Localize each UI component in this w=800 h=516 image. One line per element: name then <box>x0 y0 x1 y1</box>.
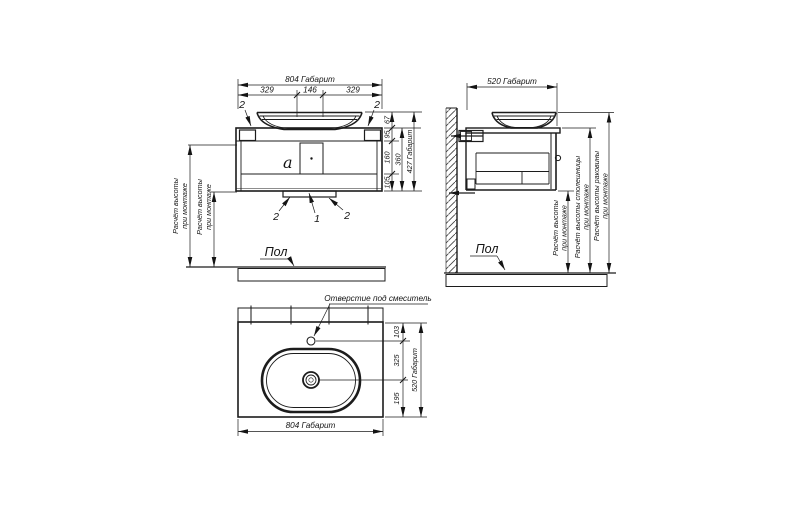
side-dim-total-depth-label: 520 Габарит <box>487 77 537 86</box>
side-sink-height-line2: при монтаже <box>601 173 610 219</box>
sink-bowl-front <box>257 113 362 130</box>
front-view: 804 Габарит 329 146 329 2 2 <box>171 75 422 281</box>
front-mount-height-2-line2: при монтаже <box>204 184 213 230</box>
front-mount-height-2-line1: Расчёт высоты <box>195 178 204 234</box>
side-dims-right: Расчёт высоты при монтаже Расчёт высоты … <box>551 113 614 274</box>
sink-bowl-side <box>492 113 556 129</box>
top-dims-right: 103 325 195 520 Габарит <box>316 323 427 417</box>
floor-label-front: Пол <box>265 245 288 259</box>
side-view: 520 Габарит <box>444 77 616 287</box>
top-dim-103: 103 <box>392 326 401 338</box>
faucet-hole-label: Отверстие под смеситель <box>324 294 431 303</box>
side-dim-total-depth: 520 Габарит <box>467 77 557 126</box>
svg-text:2: 2 <box>238 99 245 111</box>
mount-bracket-left-icon <box>240 130 256 141</box>
front-dims-right: 67 95 160 105 360 427 Габарит <box>365 112 422 191</box>
floor-front: Пол <box>186 245 386 281</box>
basin-plan <box>262 349 360 412</box>
svg-text:2: 2 <box>373 99 380 111</box>
top-dim-total-depth: 520 Габарит <box>410 348 419 392</box>
detail-a-label: a <box>283 153 293 172</box>
faucet-hole-callout: Отверстие под смеситель <box>314 294 432 336</box>
front-mount-height-1-line1: Расчёт высоты <box>171 177 180 233</box>
top-view: Отверстие под смеситель <box>238 294 432 436</box>
front-dim-95: 95 <box>383 130 392 139</box>
front-dim-360: 360 <box>394 154 403 166</box>
front-dim-total-height: 427 Габарит <box>405 130 414 174</box>
front-callout-1: 1 <box>314 213 320 225</box>
wall-hatch <box>446 108 457 273</box>
countertop-plan <box>238 322 383 417</box>
front-dim-total-width-label: 804 Габарит <box>285 75 335 84</box>
top-dim-total-width: 804 Габарит <box>238 419 383 436</box>
front-dim-160: 160 <box>383 152 392 164</box>
front-callout-bracket-left: 2 <box>238 99 251 126</box>
front-dim-105: 105 <box>383 176 392 189</box>
top-dim-total-width-label: 804 Габарит <box>286 421 336 430</box>
front-callout-2-left: 2 <box>272 211 279 223</box>
front-callouts-bottom: 2 1 2 <box>272 193 350 225</box>
front-mount-height-1-line2: при монтаже <box>180 183 189 229</box>
faucet-hole-icon <box>307 337 315 345</box>
front-callout-2-right: 2 <box>343 210 350 222</box>
side-countertop-height-line2: при монтаже <box>582 184 591 230</box>
drain-icon <box>303 372 319 388</box>
front-dims-left: Расчёт высоты при монтаже Расчёт высоты … <box>171 145 237 267</box>
top-dim-325: 325 <box>392 354 401 367</box>
front-dim-146: 146 <box>303 86 317 95</box>
front-dim-329-left: 329 <box>260 86 274 95</box>
side-mount-height-line2: при монтаже <box>560 205 569 251</box>
mount-bracket-right-icon <box>365 130 381 141</box>
top-dim-195: 195 <box>392 392 401 405</box>
cabinet-front <box>236 128 382 191</box>
technical-drawing-page: 804 Габарит 329 146 329 2 2 <box>0 0 800 516</box>
drawing-canvas: 804 Габарит 329 146 329 2 2 <box>0 0 800 516</box>
front-dim-329-right: 329 <box>346 86 360 95</box>
floor-label-side: Пол <box>476 242 499 256</box>
siphon-zone <box>300 143 323 174</box>
front-dim-67: 67 <box>383 115 392 124</box>
front-callout-bracket-right: 2 <box>368 99 380 126</box>
